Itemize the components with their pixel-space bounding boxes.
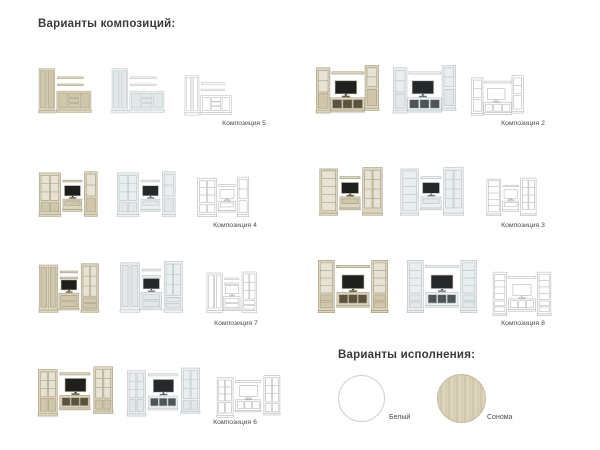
finish-white-label: Белый — [389, 414, 410, 421]
composition-8-render-white — [406, 256, 478, 313]
composition-5-label: Композиция 5 — [213, 120, 275, 127]
finish-sonoma-label: Сонома — [487, 414, 512, 421]
composition-4-drawing-outline — [193, 175, 254, 218]
composition-2-render-sonoma — [315, 60, 380, 114]
composition-7-render-white — [119, 257, 188, 313]
composition-6-render-sonoma — [37, 354, 114, 417]
compositions-heading: Варианты композиций: — [38, 18, 175, 30]
composition-4-render-white — [116, 163, 177, 218]
finishes-heading: Варианты исполнения: — [338, 349, 475, 361]
composition-8-label: Композиция 8 — [492, 320, 554, 327]
composition-7-label: Композиция 7 — [205, 320, 267, 327]
finish-swatch-white — [338, 375, 385, 422]
composition-3-render-sonoma — [316, 165, 386, 217]
finish-swatch-sonoma — [437, 374, 486, 423]
composition-3-drawing-outline — [482, 176, 541, 217]
composition-2-label: Композиция 2 — [492, 120, 554, 127]
composition-3-label: Композиция 3 — [492, 222, 554, 229]
composition-6-drawing-outline — [216, 369, 281, 418]
composition-4-render-sonoma — [38, 163, 99, 218]
composition-5-render-white — [111, 63, 168, 114]
composition-8-drawing-outline — [491, 270, 553, 316]
composition-4-label: Композиция 4 — [204, 222, 266, 229]
composition-7-drawing-outline — [206, 270, 261, 313]
catalog-page: Варианты композиций: Композиция 5 Композ… — [0, 0, 600, 450]
composition-5-drawing-outline — [184, 72, 235, 116]
composition-7-render-sonoma — [38, 259, 104, 313]
composition-6-label: Композиция 6 — [204, 419, 266, 426]
composition-6-render-white — [126, 352, 201, 417]
composition-5-render-sonoma — [38, 63, 95, 114]
composition-2-render-white — [392, 60, 457, 114]
composition-3-render-white — [397, 165, 467, 217]
composition-2-drawing-outline — [469, 72, 526, 116]
composition-8-render-sonoma — [317, 256, 389, 313]
